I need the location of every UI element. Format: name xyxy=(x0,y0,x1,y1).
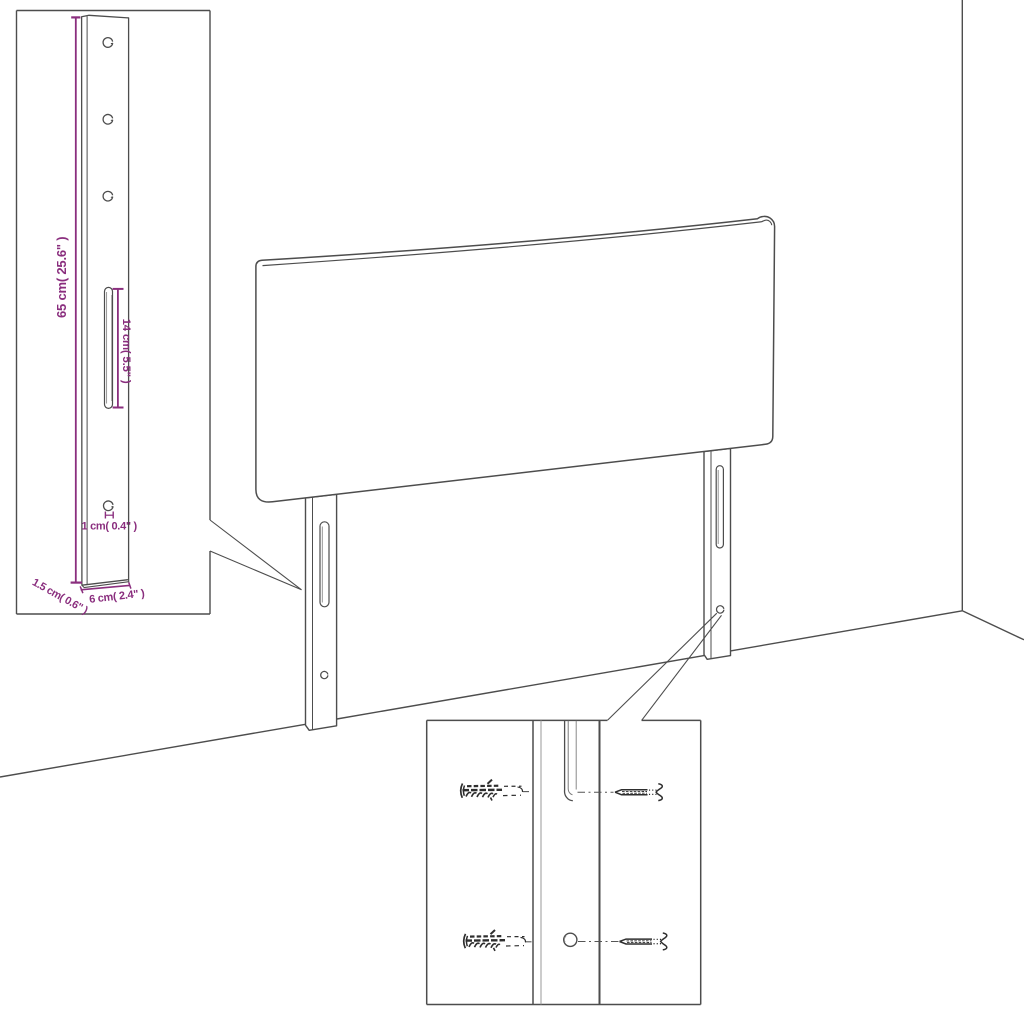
svg-text:1 cm( 0.4" ): 1 cm( 0.4" ) xyxy=(82,521,138,533)
svg-text:65 cm( 25.6" ): 65 cm( 25.6" ) xyxy=(54,237,69,318)
svg-text:14 cm( 5.5" ): 14 cm( 5.5" ) xyxy=(120,319,132,384)
